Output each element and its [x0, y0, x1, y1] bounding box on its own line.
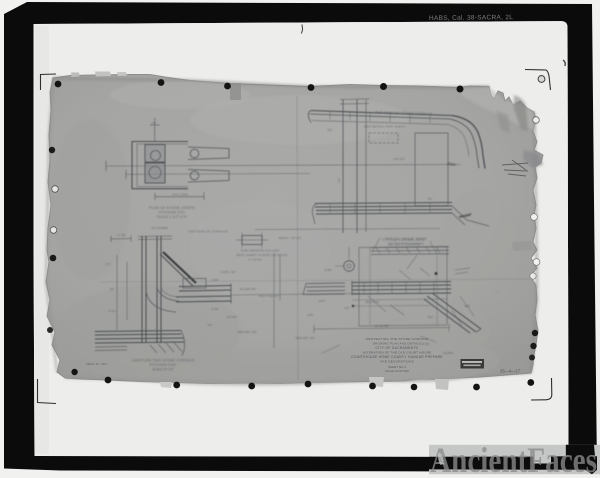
- svg-text:2′3/4″: 2′3/4″: [211, 278, 218, 282]
- svg-text:2′6″: 2′6″: [152, 121, 157, 125]
- svg-text:SCALE AS NOTED: SCALE AS NOTED: [385, 369, 409, 373]
- svg-text:4′10″ LONG: 4′10″ LONG: [172, 193, 189, 197]
- svg-text:14′0″: 14′0″: [319, 299, 326, 303]
- svg-text:4′2″: 4′2″: [345, 306, 350, 310]
- svg-text:+7 3/8: +7 3/8: [117, 233, 126, 237]
- svg-text:ROW 1 - 3′0 1/2″: ROW 1 - 3′0 1/2″: [279, 236, 301, 240]
- svg-text:SCALE 3″=1′0″: SCALE 3″=1′0″: [152, 368, 174, 372]
- svg-text:CITY OF SACRAMENTO: CITY OF SACRAMENTO: [375, 346, 418, 350]
- svg-text:JUNCTION TWO STONE CORNICE: JUNCTION TWO STONE CORNICE: [132, 359, 195, 363]
- svg-text:1′2″: 1′2″: [106, 262, 111, 266]
- svg-text:PIN 1″ DIA 2′0″: PIN 1″ DIA 2′0″: [259, 294, 279, 298]
- svg-text:SECTION: SECTION: [365, 300, 378, 304]
- svg-text:SEE DETAIL THIS SHEET: SEE DETAIL THIS SHEET: [364, 125, 406, 129]
- svg-text:SEE DET. NO: SEE DET. NO: [238, 330, 257, 334]
- svg-text:SLOPE: SLOPE: [443, 351, 453, 355]
- svg-text:THE DECORATIONS: THE DECORATIONS: [380, 360, 414, 364]
- svg-text:PITCHING ETC: PITCHING ETC: [159, 211, 185, 215]
- svg-text:6 3/4: 6 3/4: [212, 307, 219, 311]
- svg-text:SCALE 1 1/2″=1′0″: SCALE 1 1/2″=1′0″: [157, 215, 188, 219]
- svg-text:5 1/8″ x 10″: 5 1/8″ x 10″: [220, 270, 235, 274]
- svg-text:TOP ROW OF CORNICE: TOP ROW OF CORNICE: [188, 230, 227, 234]
- svg-text:40′6: 40′6: [464, 304, 470, 308]
- svg-text:10″: 10″: [110, 287, 114, 291]
- svg-text:3/4″ DOWEL: 3/4″ DOWEL: [151, 226, 168, 230]
- svg-text:10′2: 10′2: [427, 315, 433, 319]
- svg-text:PLAN OF STONE JOINTS: PLAN OF STONE JOINTS: [149, 206, 196, 210]
- svg-text:SEE DET. NO: SEE DET. NO: [296, 336, 315, 340]
- svg-text:TYPICAL DRAIN JOINT: TYPICAL DRAIN JOINT: [385, 237, 427, 241]
- svg-text:SHOWING PLAN AND DETAILS: SHOWING PLAN AND DETAILS: [373, 342, 421, 346]
- svg-text:35—4—17: 35—4—17: [500, 369, 521, 374]
- svg-text:CUT IN 4 ROW CORNICE: CUT IN 4 ROW CORNICE: [388, 242, 423, 246]
- svg-text:2′0″: 2′0″: [328, 128, 333, 132]
- svg-text:PROTECTING THE STONE CORNICE: PROTECTING THE STONE CORNICE: [366, 337, 428, 341]
- svg-text:+9 3/4: +9 3/4: [421, 342, 430, 346]
- svg-text:8 1/2: 8 1/2: [109, 309, 116, 313]
- svg-text:3′6″: 3′6″: [208, 323, 213, 327]
- svg-text:REAL SHEET 14 END LOCATION: REAL SHEET 14 END LOCATION: [237, 253, 288, 257]
- svg-text:10′6 1/2″: 10′6 1/2″: [393, 157, 405, 161]
- svg-text:14′0: 14′0: [307, 313, 313, 317]
- svg-text:—: —: [496, 290, 499, 294]
- svg-text:3′4″: 3′4″: [428, 197, 433, 201]
- svg-text:2′0 1/8″: 2′0 1/8″: [227, 315, 237, 319]
- svg-text:2 x 10 1/2: 2 x 10 1/2: [248, 258, 262, 262]
- svg-text:FILLER 3/4″: FILLER 3/4″: [240, 287, 256, 291]
- svg-text:2 3/8: 2 3/8: [325, 268, 332, 272]
- svg-text:ALTERATION OF THE OLD COURT HO: ALTERATION OF THE OLD COURT HOUSE: [363, 351, 432, 355]
- svg-text:PITCHING END: PITCHING END: [150, 363, 177, 367]
- svg-text:AncientFaces: AncientFaces: [430, 440, 597, 478]
- svg-text:HABS, Cal. 38-SACRA, 2L: HABS, Cal. 38-SACRA, 2L: [429, 14, 513, 22]
- svg-text:24′-10 5/8″: 24′-10 5/8″: [375, 324, 389, 328]
- svg-text:MEAS. BY JRS: MEAS. BY JRS: [86, 362, 107, 366]
- svg-text:COURTHOUSE HOME COUNTY HANGAR: COURTHOUSE HOME COUNTY HANGAR PREPARE: [351, 355, 443, 359]
- svg-text:SIZE GRANITE COLUMN: SIZE GRANITE COLUMN: [241, 249, 279, 253]
- svg-text:9′2″: 9′2″: [337, 178, 341, 183]
